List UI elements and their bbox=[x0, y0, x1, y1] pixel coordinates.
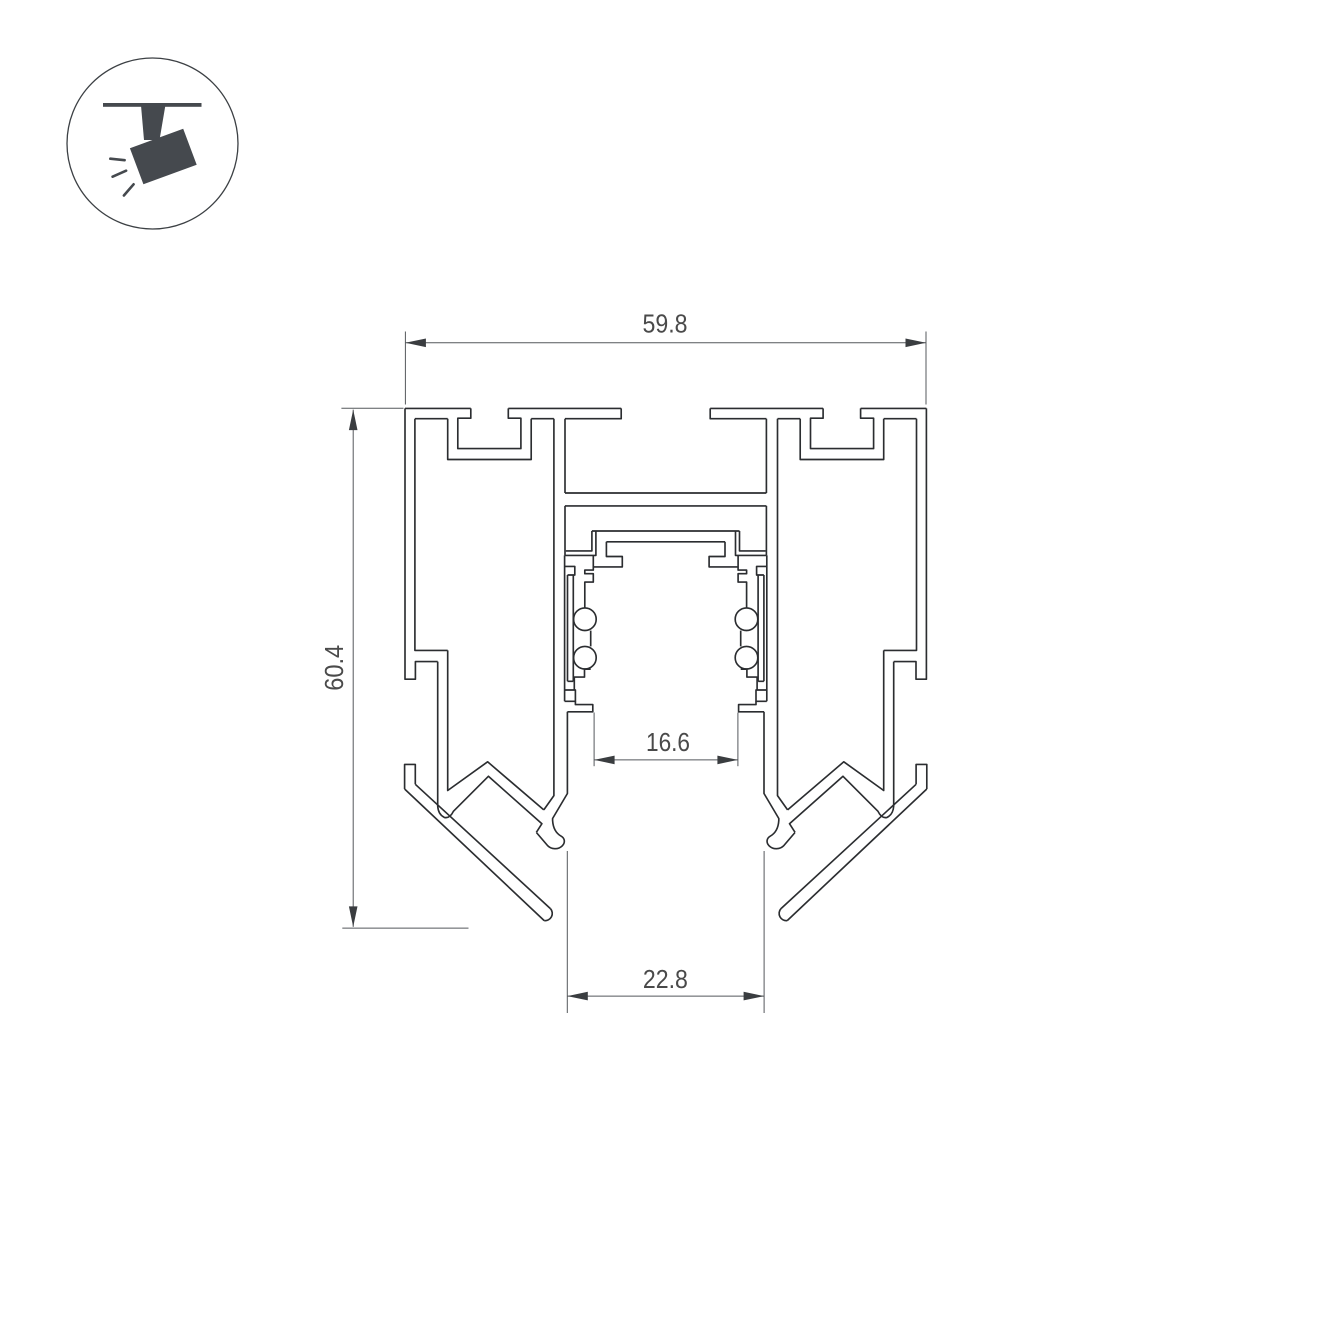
svg-text:59.8: 59.8 bbox=[643, 308, 688, 338]
svg-text:22.8: 22.8 bbox=[643, 964, 688, 994]
svg-text:16.6: 16.6 bbox=[646, 727, 690, 757]
svg-text:60.4: 60.4 bbox=[319, 645, 349, 691]
